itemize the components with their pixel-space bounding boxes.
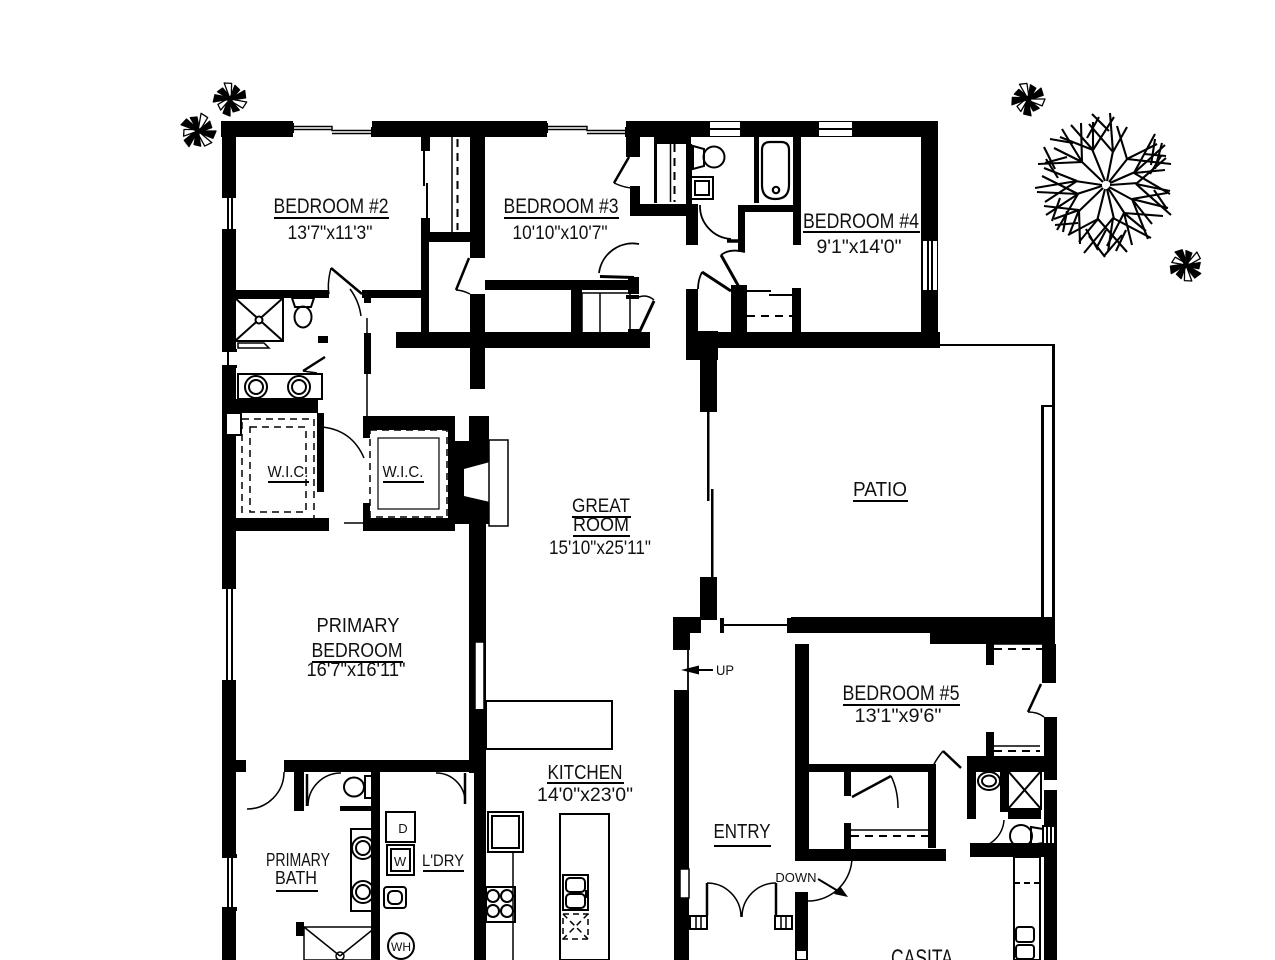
svg-text:14'0"x23'0": 14'0"x23'0" [537, 785, 633, 806]
svg-text:PRIMARY: PRIMARY [266, 850, 330, 870]
svg-text:D: D [398, 821, 407, 836]
svg-text:15'10"x25'11": 15'10"x25'11" [549, 538, 651, 559]
svg-text:13'1"x9'6": 13'1"x9'6" [855, 706, 942, 727]
svg-text:UP: UP [716, 662, 734, 678]
svg-text:WH: WH [391, 940, 411, 954]
svg-text:W.I.C.: W.I.C. [383, 464, 424, 481]
svg-text:CASITA: CASITA [891, 945, 953, 960]
svg-text:9'1"x14'0": 9'1"x14'0" [817, 237, 902, 258]
svg-text:PATIO: PATIO [853, 479, 907, 501]
svg-text:10'10"x10'7": 10'10"x10'7" [513, 223, 608, 244]
svg-text:BEDROOM #3: BEDROOM #3 [504, 195, 619, 218]
svg-text:BEDROOM: BEDROOM [312, 640, 403, 662]
svg-text:KITCHEN: KITCHEN [548, 762, 623, 784]
svg-text:W.I.C.: W.I.C. [268, 464, 309, 481]
svg-text:GREAT: GREAT [572, 496, 630, 517]
svg-text:16'7"x16'11": 16'7"x16'11" [307, 660, 406, 681]
svg-text:BEDROOM #2: BEDROOM #2 [274, 195, 389, 218]
svg-text:13'7"x11'3": 13'7"x11'3" [288, 223, 373, 244]
svg-text:W: W [394, 854, 407, 869]
svg-text:DOWN: DOWN [775, 870, 816, 885]
svg-text:BEDROOM #4: BEDROOM #4 [803, 210, 919, 233]
svg-text:ENTRY: ENTRY [714, 821, 771, 843]
svg-text:BEDROOM #5: BEDROOM #5 [843, 682, 960, 705]
svg-text:L'DRY: L'DRY [422, 851, 464, 870]
svg-text:BATH: BATH [275, 868, 317, 888]
svg-text:PRIMARY: PRIMARY [317, 615, 400, 637]
svg-text:ROOM: ROOM [573, 515, 629, 536]
